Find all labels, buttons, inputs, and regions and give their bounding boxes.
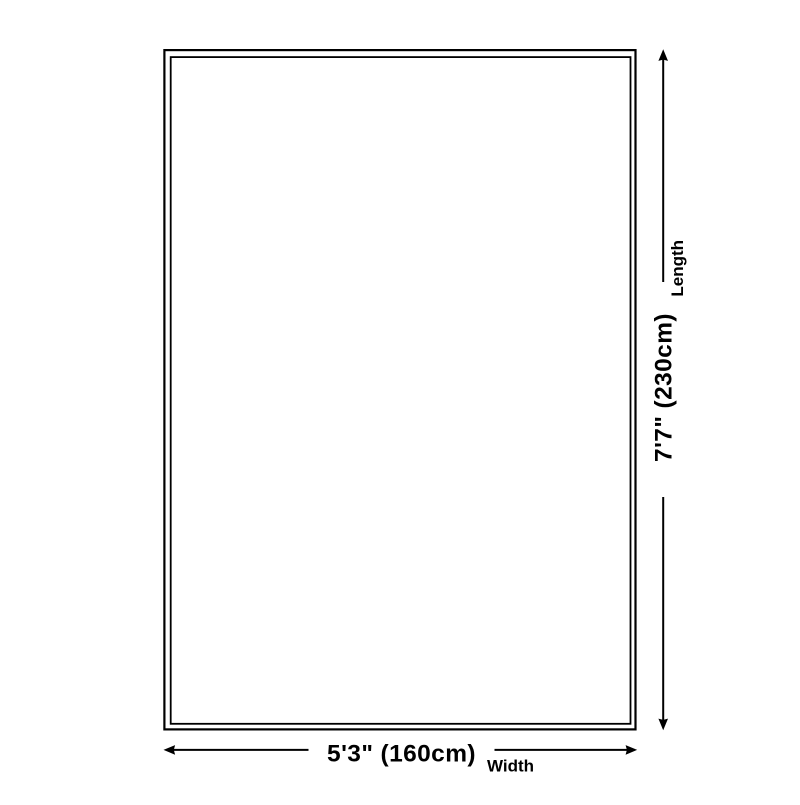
svg-text:Width: Width: [487, 756, 534, 775]
svg-text:Length: Length: [668, 240, 687, 297]
svg-text:5'3" (160cm): 5'3" (160cm): [327, 741, 476, 768]
svg-text:7'7" (230cm): 7'7" (230cm): [651, 313, 678, 462]
